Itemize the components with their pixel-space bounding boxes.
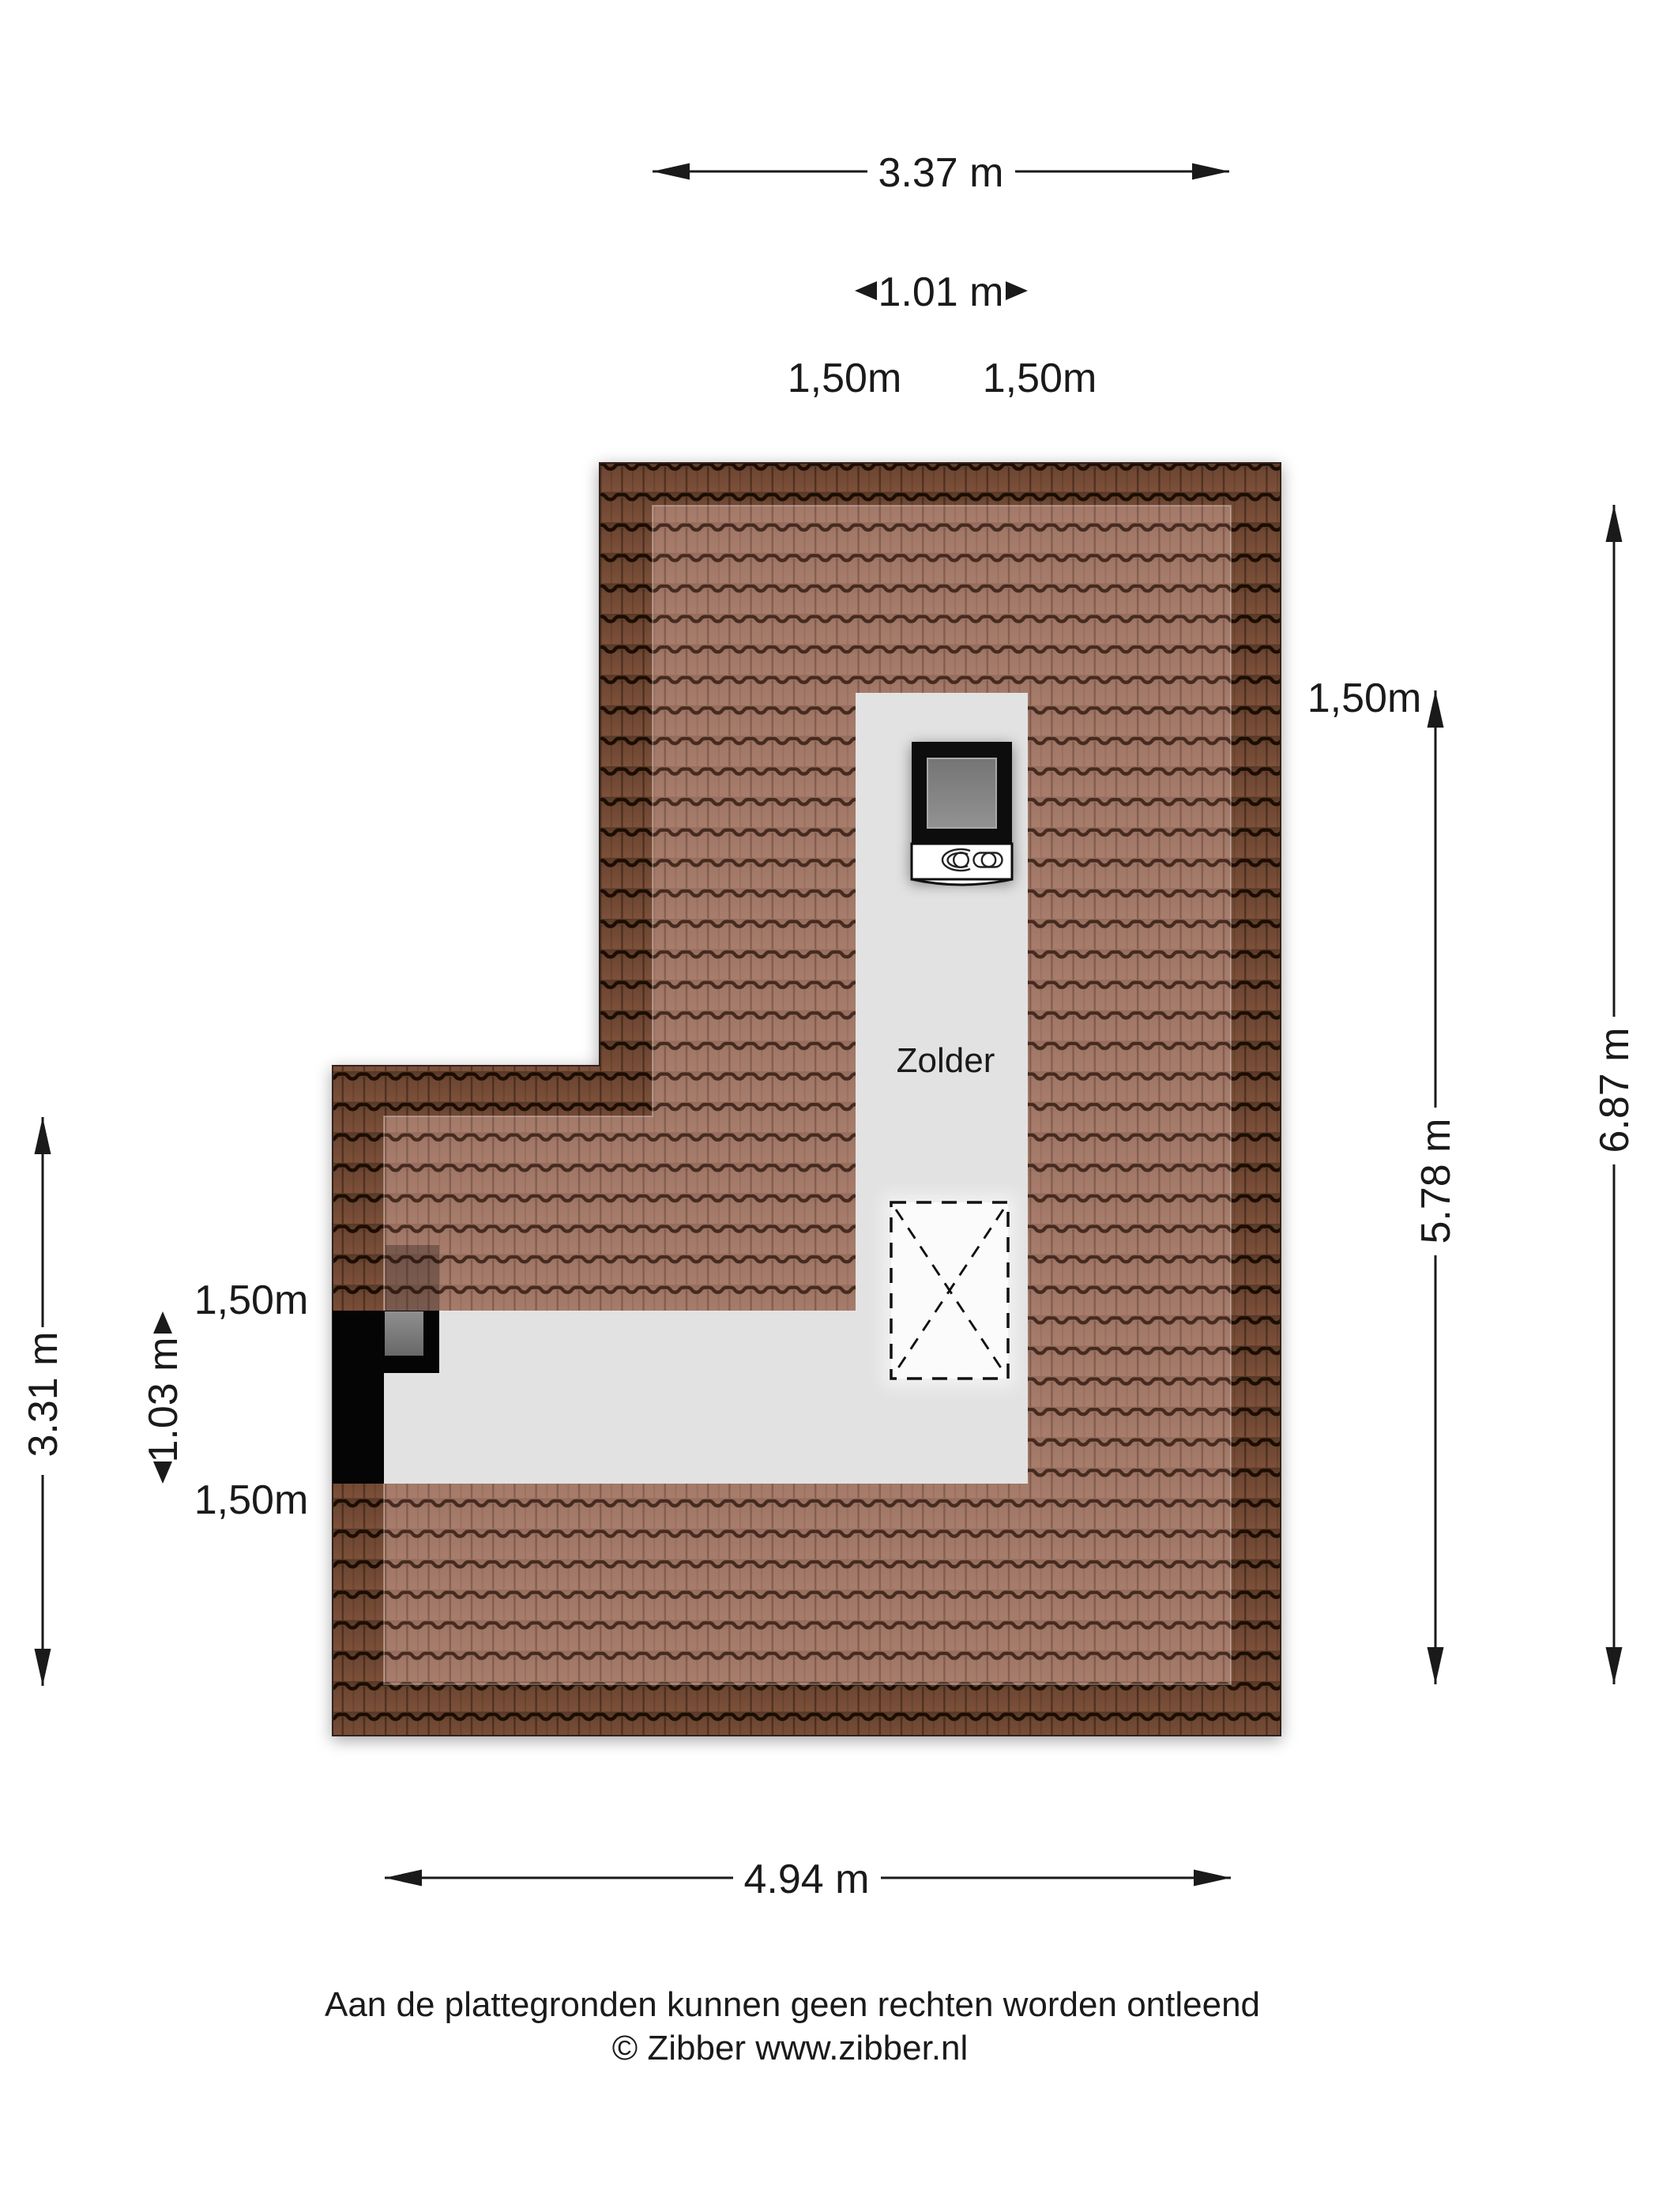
svg-text:Aan de plattegronden kunnen ge: Aan de plattegronden kunnen geen rechten… [325,1985,1260,2024]
svg-text:4.94 m: 4.94 m [744,1856,870,1902]
svg-text:1,50m: 1,50m [194,1277,309,1323]
svg-text:1,50m: 1,50m [983,355,1097,401]
svg-text:1.01 m: 1.01 m [878,269,1004,315]
svg-text:1.03 m: 1.03 m [141,1337,186,1463]
svg-text:© Zibber www.zibber.nl: © Zibber www.zibber.nl [612,2029,969,2067]
svg-text:6.87 m: 6.87 m [1592,1028,1638,1153]
svg-text:1,50m: 1,50m [788,355,902,401]
svg-text:1,50m: 1,50m [194,1477,309,1523]
svg-text:3.37 m: 3.37 m [878,150,1004,196]
svg-text:5.78 m: 5.78 m [1413,1119,1459,1244]
svg-text:3.31 m: 3.31 m [21,1332,66,1458]
svg-text:1,50m: 1,50m [1307,675,1422,721]
svg-text:Zolder: Zolder [897,1041,995,1080]
